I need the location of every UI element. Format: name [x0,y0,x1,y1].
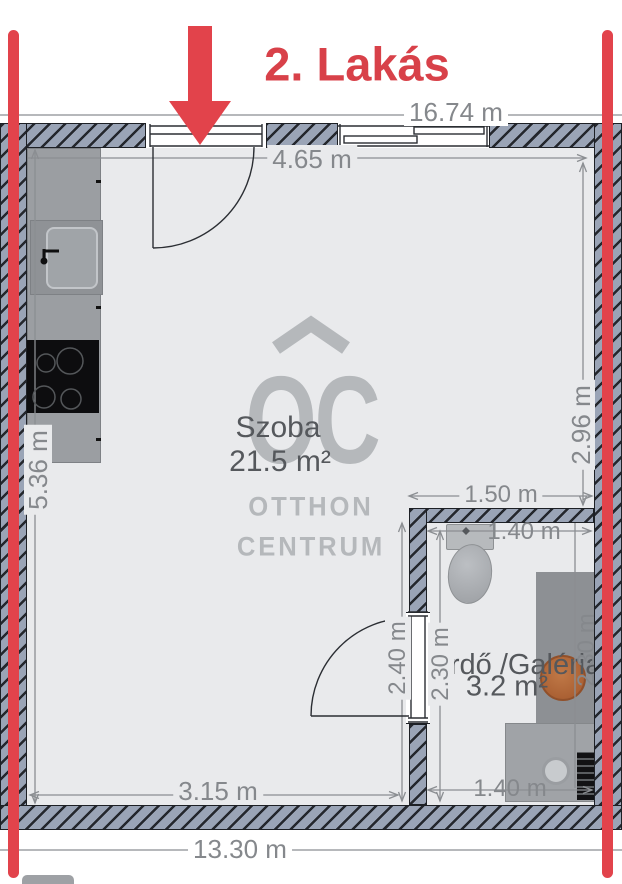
wall-bottom [0,805,622,830]
dim-room-width: 4.65 m [267,145,357,173]
dim-bath-inner-height: 2.30 m [428,622,454,705]
watermark-line2: CENTRUM [237,532,385,563]
cabinet-handle [96,306,101,309]
page-title: 2. Lakás [264,37,450,92]
dim-bath-outer-width: 1.50 m [459,482,542,508]
wall-bath-left-lower [409,724,427,805]
dim-left-height: 5.36 m [24,425,52,515]
wall-bath-left-upper [409,508,427,614]
red-boundary-line-left [8,30,19,878]
dim-total-bottom: 13.30 m [188,835,292,863]
marker-arrow-shaft [188,26,212,102]
watermark-line1: OTTHON [248,492,373,523]
room-label-main-area: 21.5 m² [229,447,331,477]
cabinet-handle [96,180,101,183]
dim-door-strip-height: 2.40 m [385,616,411,699]
cooktop [27,340,99,413]
dim-bath-bottom-width: 1.40 m [468,776,551,802]
room-label-bath-area: 3.2 m² [466,673,548,702]
kitchen-sink-basin [46,227,98,289]
washing-machine-panel [577,752,594,800]
red-boundary-line-right [602,30,613,878]
cabinet-handle [96,438,101,441]
kitchen-counter [27,148,101,463]
room-label-main-name: Szoba [235,413,320,443]
dim-total-top: 16.74 m [404,98,508,126]
dim-bottom-left-width: 3.15 m [173,777,263,805]
bottom-edge-artifact [22,875,74,884]
floor-plan: OC OTTHON CENTRUM Fürdő /Galéria 3.2 m² … [0,0,622,884]
dim-right-height: 2.96 m [567,380,595,470]
dim-bath-inner-width: 1.40 m [482,519,565,545]
marker-arrow-icon [169,101,231,145]
